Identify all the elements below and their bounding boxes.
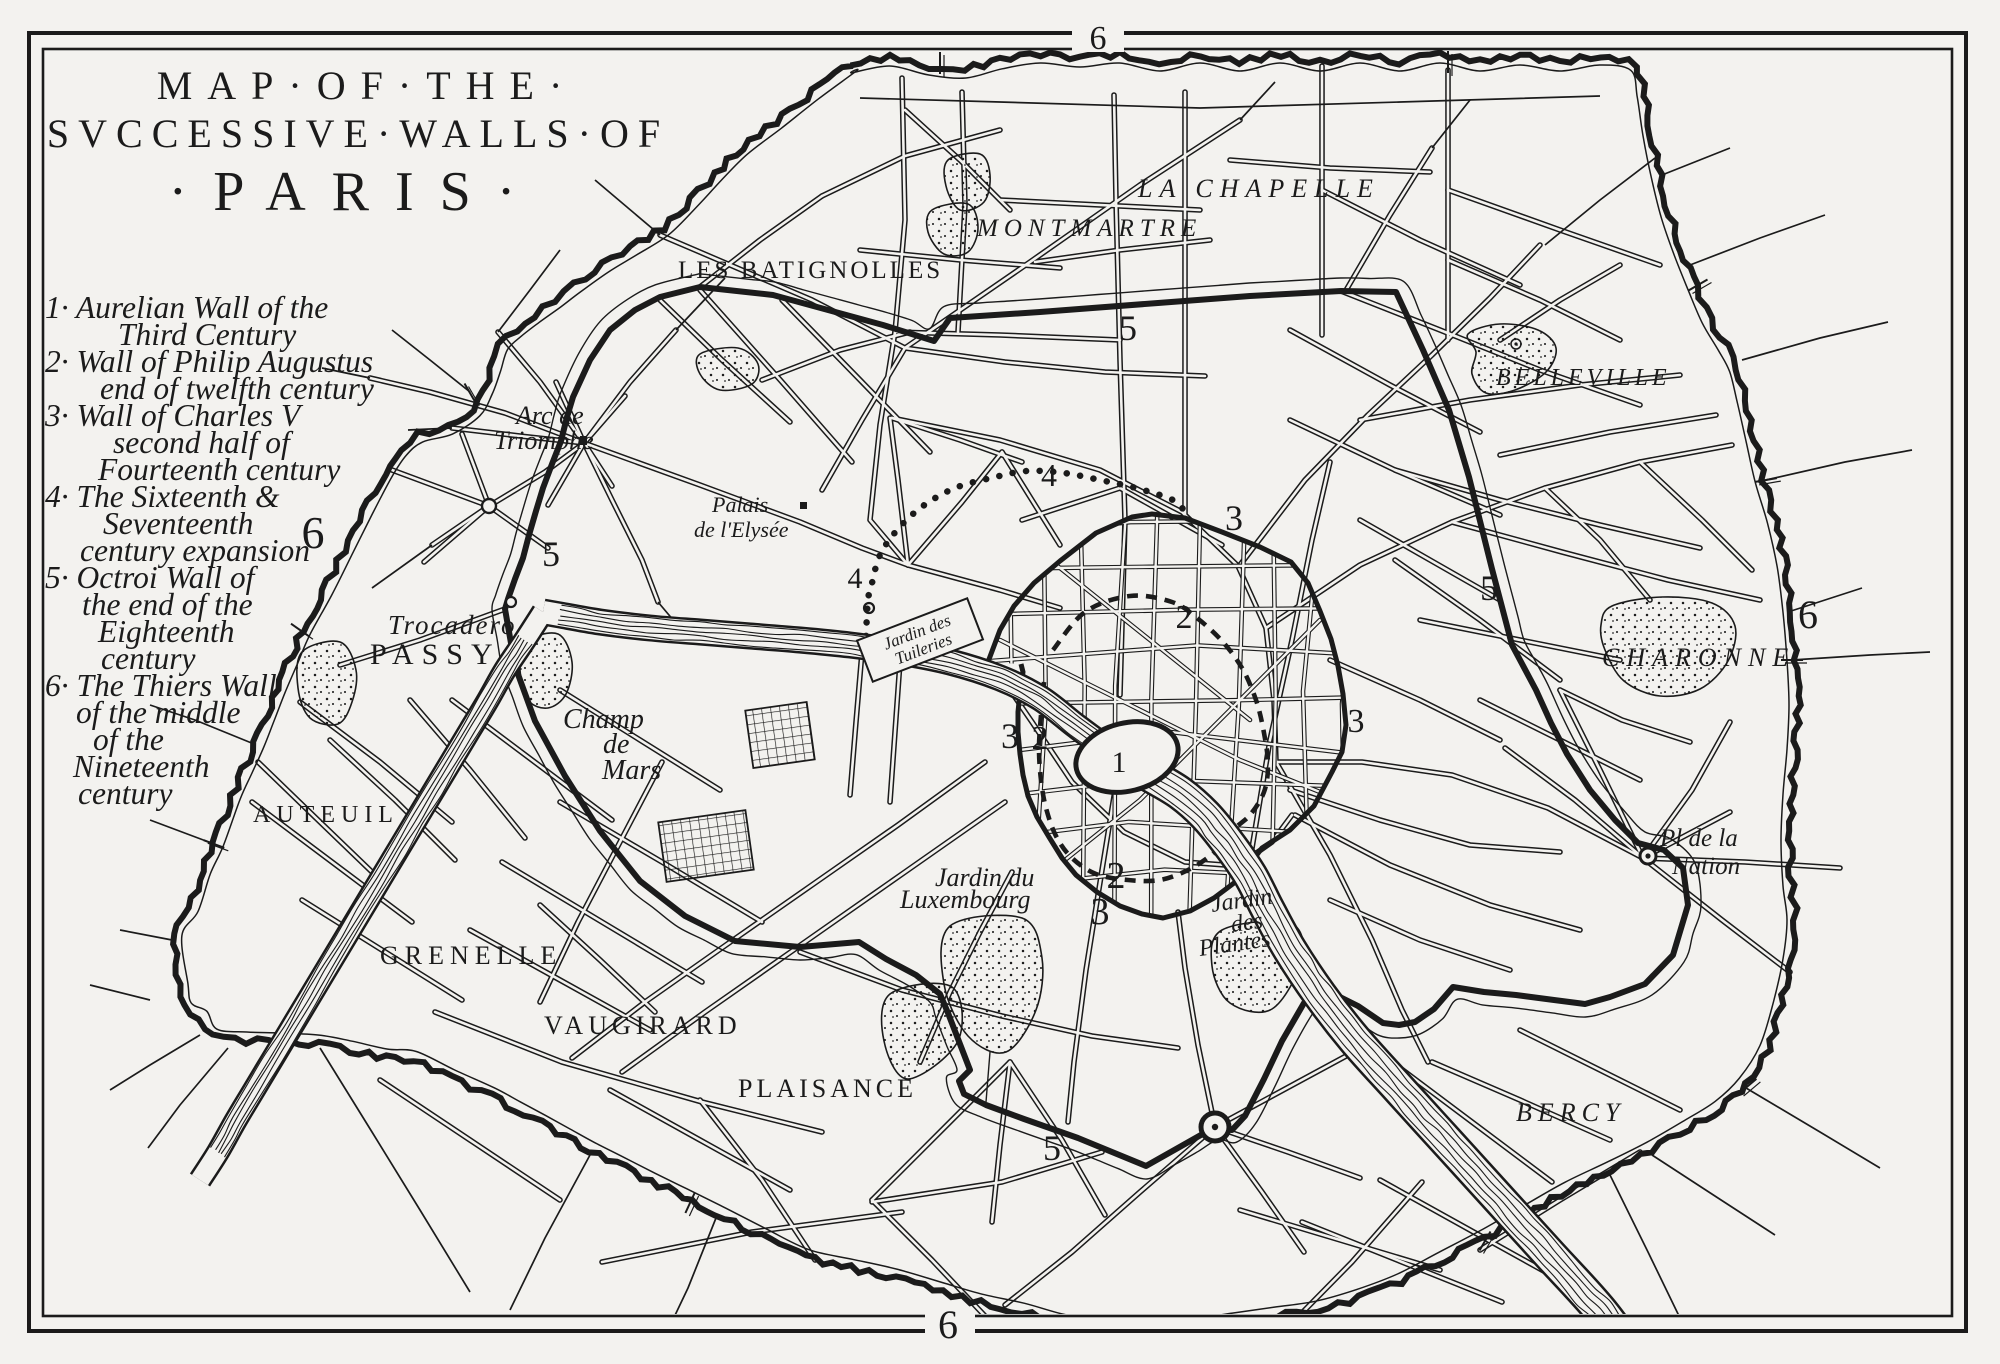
svg-text:6: 6 <box>1090 20 1107 57</box>
svg-text:2: 2 <box>1176 599 1193 636</box>
svg-text:Luxembourg: Luxembourg <box>899 885 1030 914</box>
svg-text:4: 4 <box>1041 457 1057 493</box>
svg-text:BERCY: BERCY <box>1516 1098 1625 1127</box>
svg-text:2: 2 <box>1032 720 1049 757</box>
svg-text:CHARONNE: CHARONNE <box>1602 643 1795 672</box>
svg-text:LES BATIGNOLLES: LES BATIGNOLLES <box>678 257 943 284</box>
svg-text:6: 6 <box>938 1302 958 1347</box>
svg-text:2: 2 <box>1107 855 1126 897</box>
svg-text:century: century <box>78 776 172 811</box>
svg-text:3: 3 <box>1091 891 1110 933</box>
svg-text:1: 1 <box>1112 746 1127 779</box>
svg-text:Palais: Palais <box>711 492 768 517</box>
svg-text:5: 5 <box>1043 1128 1061 1168</box>
svg-text:5: 5 <box>1119 308 1137 348</box>
svg-text:5: 5 <box>1480 568 1498 608</box>
svg-text:GRENELLE: GRENELLE <box>380 941 562 970</box>
svg-text:PLAISANCE: PLAISANCE <box>738 1074 917 1103</box>
svg-text:·PARIS·: ·PARIS· <box>169 161 542 223</box>
svg-text:Mars: Mars <box>601 755 661 786</box>
svg-text:SVCCESSIVE·WALLS·OF: SVCCESSIVE·WALLS·OF <box>47 111 669 156</box>
svg-text:5: 5 <box>542 534 560 574</box>
svg-text:VAUGIRARD: VAUGIRARD <box>544 1011 742 1040</box>
svg-text:BELLEVILLE: BELLEVILLE <box>1496 365 1671 391</box>
svg-text:3: 3 <box>1001 716 1019 756</box>
svg-text:Pl de la: Pl de la <box>1659 825 1738 852</box>
svg-text:6: 6 <box>1798 592 1818 637</box>
svg-text:Trocadero: Trocadero <box>388 610 517 640</box>
svg-text:3: 3 <box>1348 703 1365 740</box>
svg-text:AUTEUIL: AUTEUIL <box>253 802 399 828</box>
svg-text:PASSY: PASSY <box>370 638 501 671</box>
svg-text:6: 6 <box>302 507 325 558</box>
svg-text:MONTMARTRE: MONTMARTRE <box>976 215 1202 242</box>
svg-text:4: 4 <box>848 562 863 595</box>
svg-text:Nation: Nation <box>1671 853 1740 880</box>
svg-text:3: 3 <box>1225 498 1243 538</box>
svg-text:Triomphe: Triomphe <box>494 426 594 455</box>
svg-text:de l'Elysée: de l'Elysée <box>694 517 789 542</box>
svg-text:LA CHAPELLE: LA CHAPELLE <box>1137 174 1380 203</box>
svg-text:MAP·OF·THE·: MAP·OF·THE· <box>157 63 578 108</box>
